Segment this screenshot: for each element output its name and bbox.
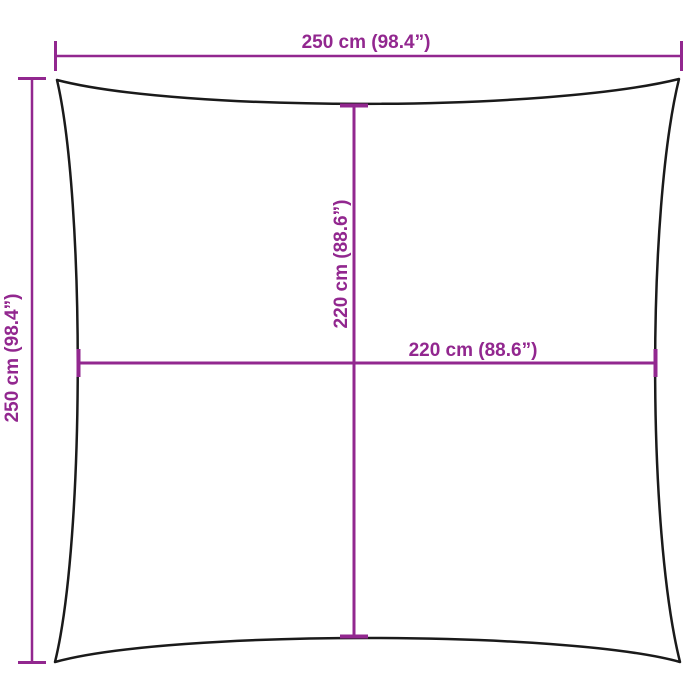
label-outer-height: 250 cm (98.4”) xyxy=(2,294,23,423)
sail-outline xyxy=(55,79,680,662)
dimension-outer-width: 250 cm (98.4”) xyxy=(55,32,682,71)
dimension-inner-width: 220 cm (88.6”) xyxy=(78,340,656,377)
diagram-canvas: 250 cm (98.4”) 250 cm (98.4”) 220 cm (88… xyxy=(0,0,700,700)
label-inner-width: 220 cm (88.6”) xyxy=(409,340,538,361)
dimension-outer-height: 250 cm (98.4”) xyxy=(2,78,46,663)
dimension-inner-height: 220 cm (88.6”) xyxy=(331,105,368,637)
label-outer-width: 250 cm (98.4”) xyxy=(302,32,431,53)
label-inner-height: 220 cm (88.6”) xyxy=(331,200,352,329)
dimension-diagram: 250 cm (98.4”) 250 cm (98.4”) 220 cm (88… xyxy=(0,0,700,700)
